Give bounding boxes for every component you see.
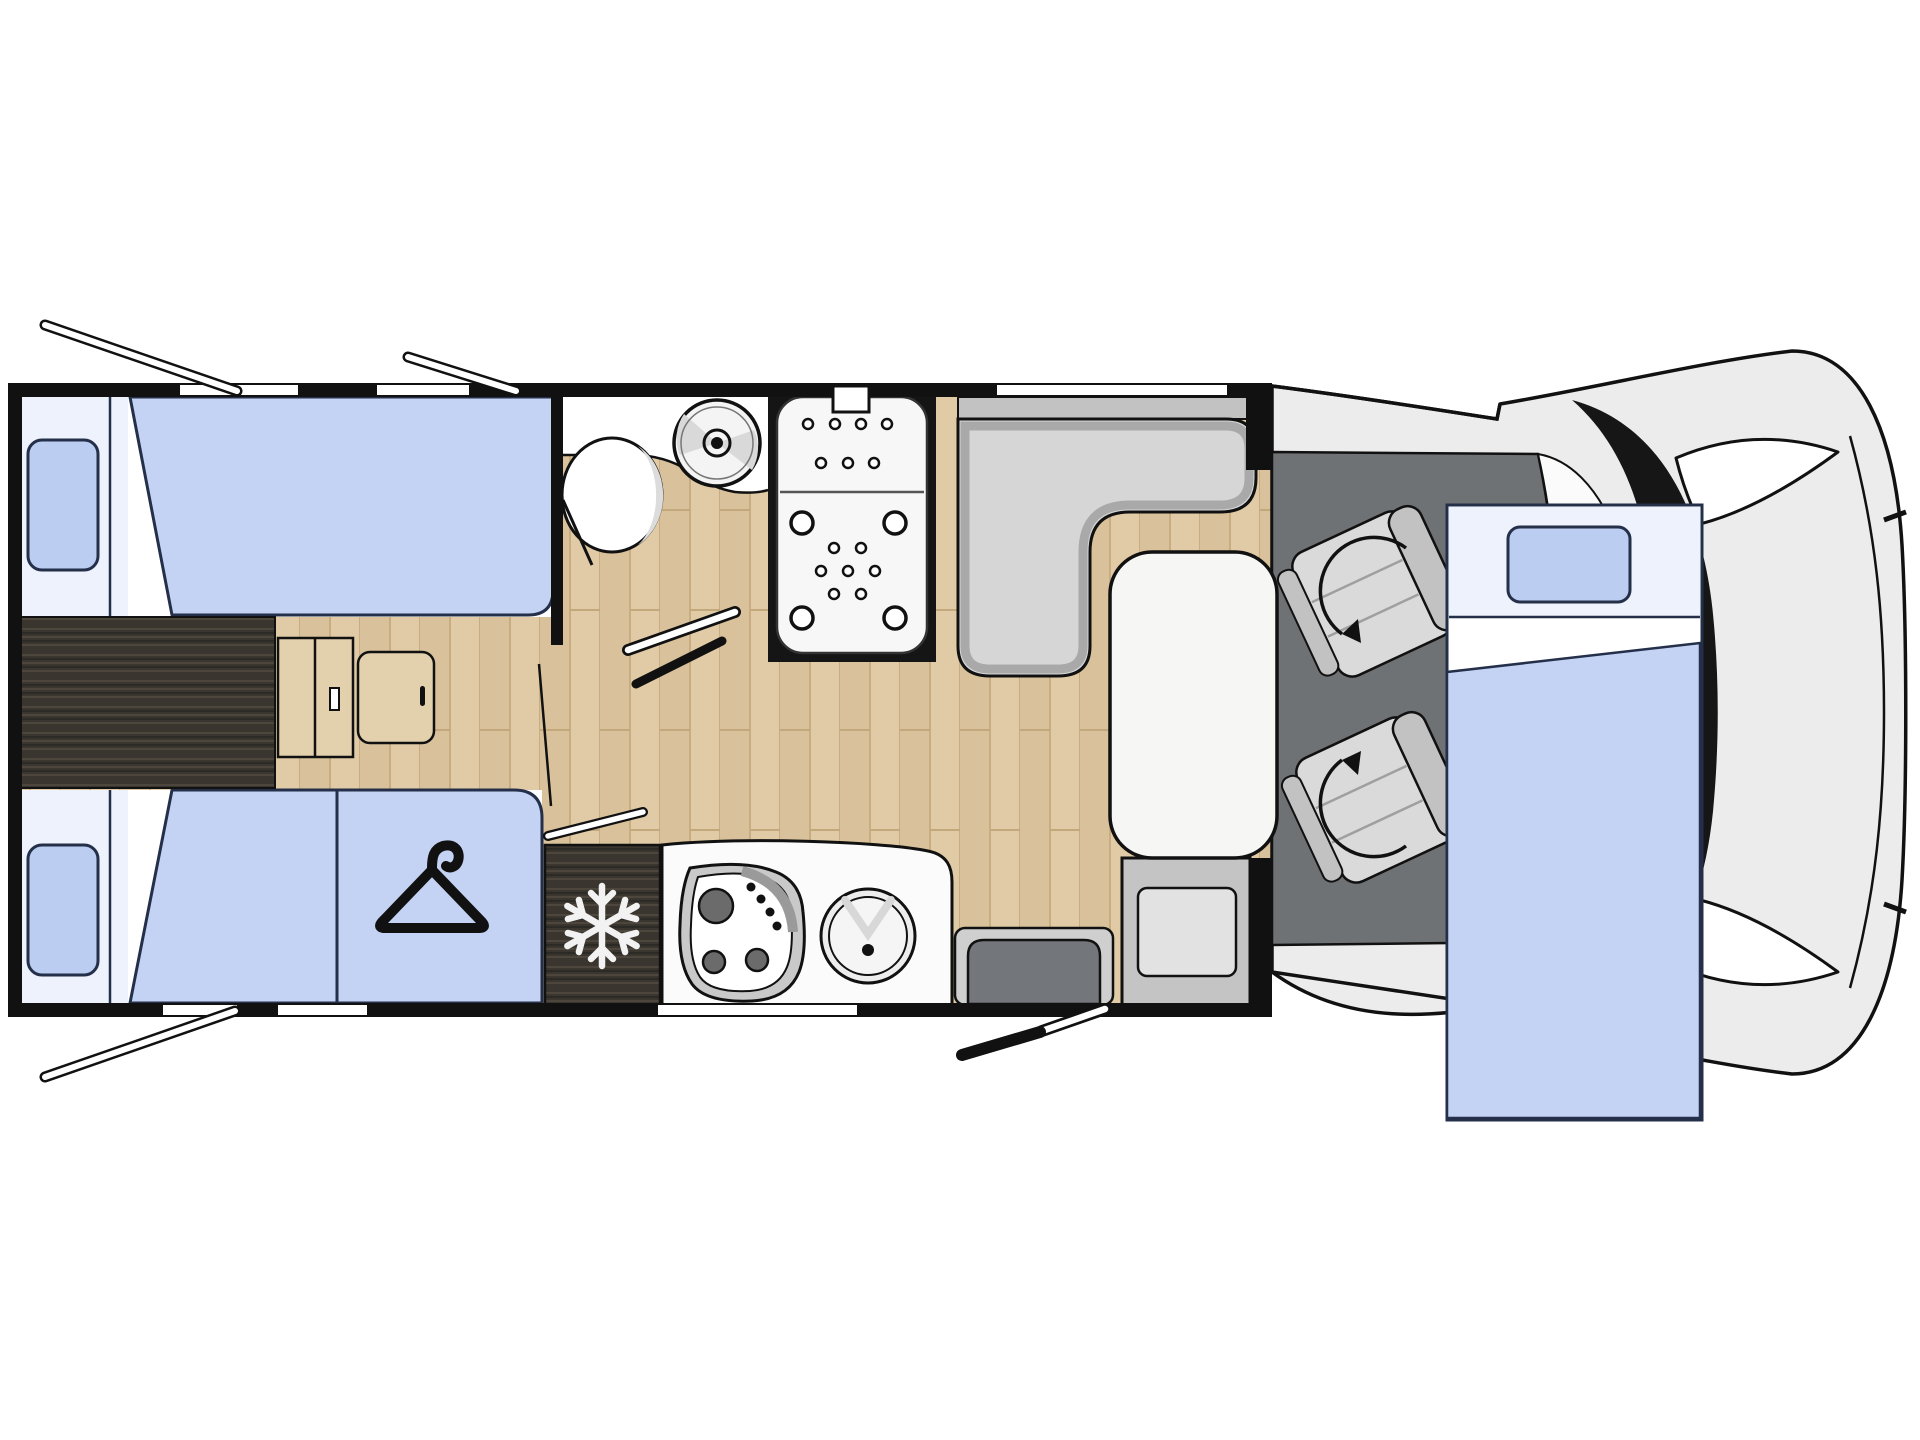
entry-step: [1122, 858, 1250, 1006]
mattress: [130, 397, 553, 615]
burner-small: [746, 949, 768, 971]
bathroom-wall: [551, 395, 563, 645]
floorplan-canvas: [0, 0, 1920, 1440]
center-platform: [16, 617, 275, 788]
shower: [768, 388, 936, 662]
pillow: [1508, 527, 1630, 602]
wall-right-top: [1246, 383, 1272, 470]
kitchen: [545, 841, 952, 1006]
washbasin: [674, 400, 760, 486]
cabinet-handle: [330, 688, 339, 710]
wardrobe-panel: [337, 790, 542, 1003]
cabinet-handle: [420, 686, 425, 706]
bed-rear-top: [20, 397, 553, 617]
pillow: [28, 440, 98, 570]
side-seat: [955, 928, 1113, 1005]
drop-down-bed: [1447, 505, 1702, 1120]
sink-drain: [862, 944, 874, 956]
dinette-table: [1110, 552, 1277, 858]
bed-rear-bottom: [20, 790, 542, 1003]
burner-small: [703, 951, 725, 973]
mattress: [1447, 643, 1700, 1118]
kitchen-sink: [821, 889, 915, 983]
hob: [680, 864, 805, 1001]
wall-right-bottom: [1250, 858, 1272, 1017]
wall-left: [8, 383, 22, 1017]
side-seat-backrest: [968, 940, 1100, 1004]
dinette-backrest: [958, 397, 1258, 419]
shower-notch: [833, 386, 869, 412]
burner-large: [699, 889, 733, 923]
pillow: [28, 845, 98, 975]
